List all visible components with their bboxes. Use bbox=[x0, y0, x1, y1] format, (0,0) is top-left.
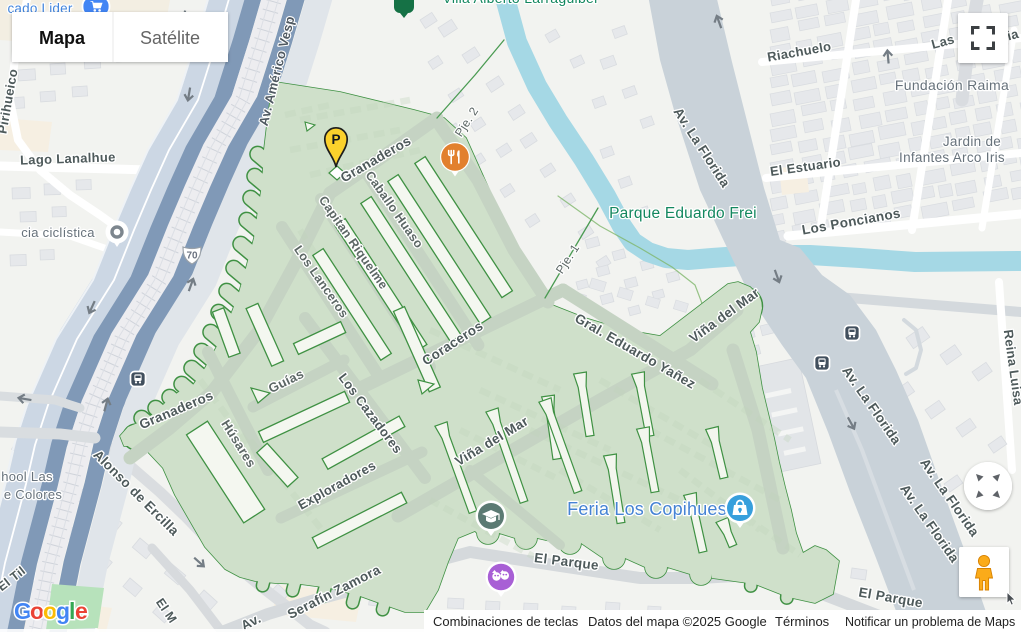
svg-text:70: 70 bbox=[186, 251, 198, 262]
svg-text:Mapa: Mapa bbox=[39, 28, 86, 48]
svg-text:hool Las: hool Las bbox=[1, 469, 53, 484]
svg-text:Términos: Términos bbox=[775, 614, 830, 629]
svg-text:Parque Eduardo Frei: Parque Eduardo Frei bbox=[609, 205, 757, 222]
svg-text:e: e bbox=[75, 598, 88, 624]
svg-text:Satélite: Satélite bbox=[140, 28, 200, 48]
svg-text:o: o bbox=[43, 598, 57, 624]
svg-text:Feria Los Copihues: Feria Los Copihues bbox=[567, 499, 727, 519]
svg-text:Villa Alberto Larraguibel: Villa Alberto Larraguibel bbox=[442, 0, 597, 6]
svg-text:Jardin de: Jardin de bbox=[943, 134, 1001, 149]
svg-text:Combinaciones de teclas: Combinaciones de teclas bbox=[433, 614, 579, 629]
svg-text:g: g bbox=[56, 598, 70, 624]
svg-text:cia ciclística: cia ciclística bbox=[21, 225, 95, 240]
svg-text:Datos del mapa ©2025 Google: Datos del mapa ©2025 Google bbox=[588, 614, 767, 629]
svg-text:Fundación Raima: Fundación Raima bbox=[895, 77, 1009, 93]
svg-text:o: o bbox=[30, 598, 44, 624]
svg-text:P: P bbox=[331, 132, 340, 147]
svg-text:e Colores: e Colores bbox=[4, 487, 63, 502]
svg-text:Notificar un problema de Maps: Notificar un problema de Maps bbox=[845, 615, 1015, 629]
svg-text:Infantes Arco Iris: Infantes Arco Iris bbox=[899, 150, 1005, 165]
